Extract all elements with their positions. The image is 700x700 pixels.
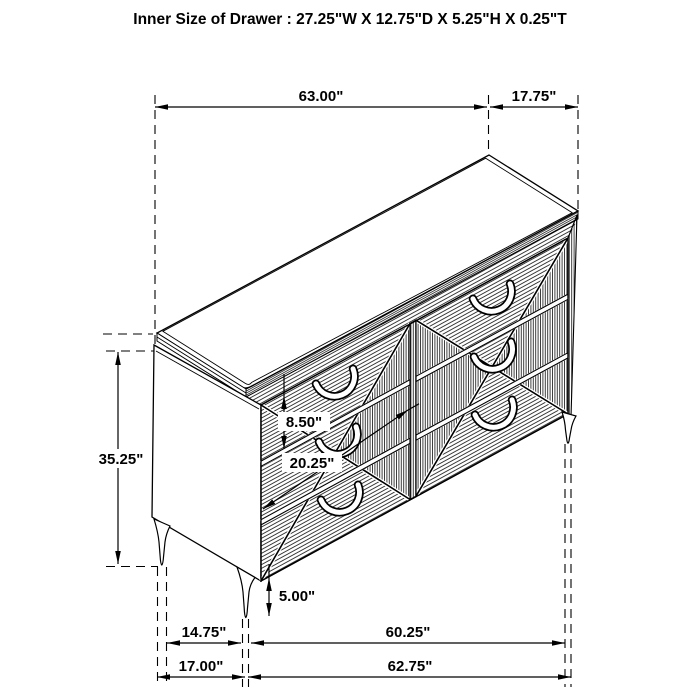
dim-leg-height-label: 5.00" bbox=[279, 588, 315, 605]
dim-leg-span-width-label: 60.25" bbox=[386, 624, 431, 641]
dim-top-depth-label: 17.75" bbox=[512, 88, 557, 105]
dim-leg-span-width: 60.25" bbox=[251, 624, 565, 643]
dim-base-depth: 17.00" bbox=[157, 658, 245, 677]
dim-overall-height: 35.25" bbox=[94, 352, 148, 564]
dresser-drawing bbox=[152, 155, 578, 618]
right-end-strip bbox=[568, 215, 577, 417]
dim-base-width-label: 62.75" bbox=[388, 658, 433, 675]
dresser-dimension-diagram: Inner Size of Drawer : 27.25"W X 12.75"D… bbox=[0, 0, 700, 700]
dim-top-width: 63.00" bbox=[155, 88, 487, 107]
dim-top-drawer-height-label: 8.50" bbox=[286, 414, 322, 431]
diagram-title: Inner Size of Drawer : 27.25"W X 12.75"D… bbox=[133, 11, 567, 28]
dim-base-width: 62.75" bbox=[248, 658, 571, 677]
dim-leg-inset-depth-label: 14.75" bbox=[182, 624, 227, 641]
dim-top-depth: 17.75" bbox=[490, 88, 578, 107]
diagram-canvas: Inner Size of Drawer : 27.25"W X 12.75"D… bbox=[0, 0, 700, 700]
front-right-leg bbox=[562, 412, 576, 443]
dim-overall-height-label: 35.25" bbox=[99, 451, 144, 468]
dim-leg-inset-depth: 14.75" bbox=[167, 624, 241, 643]
dim-lower-drawers-height-label: 20.25" bbox=[290, 455, 335, 472]
dim-base-depth-label: 17.00" bbox=[179, 658, 224, 675]
center-divider bbox=[410, 320, 416, 499]
dim-top-width-label: 63.00" bbox=[299, 88, 344, 105]
back-left-leg bbox=[154, 519, 170, 565]
